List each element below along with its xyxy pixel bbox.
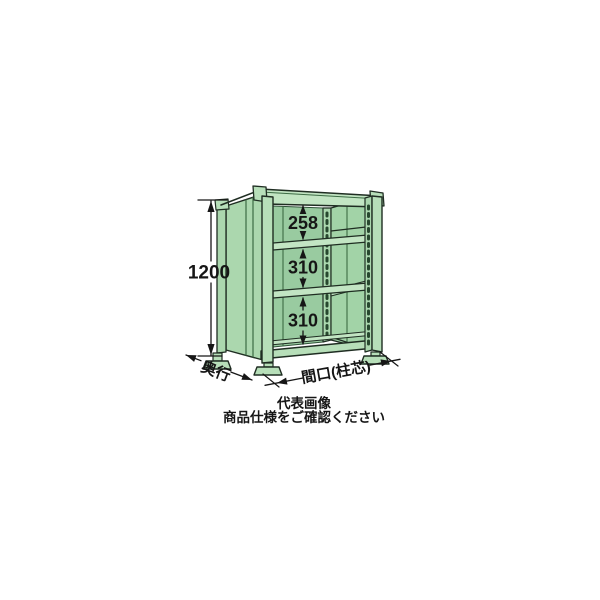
arrow-upleft-icon: [186, 355, 197, 362]
foot-front-left: [254, 363, 282, 375]
caption-line-1: 代表画像: [276, 395, 331, 411]
front-left-post: [262, 196, 273, 363]
caption-line-2: 商品仕様をご確認ください: [223, 409, 385, 425]
arrow-downright-icon: [241, 373, 252, 380]
left-side-panel: [226, 194, 263, 360]
height-dimension-value: 1200: [188, 263, 230, 284]
arrow-up-icon: [207, 201, 214, 212]
spacing-value-3: 310: [288, 311, 318, 331]
arrow-upright-icon: [381, 359, 392, 366]
spacing-value-2: 310: [288, 257, 318, 277]
width-dimension-label: 間口(柱芯): [300, 357, 372, 387]
catalog-product-image: 1200 258 310 310: [0, 0, 600, 600]
shelf-unit-drawing: 1200 258 310 310: [0, 0, 600, 600]
front-right-post: [372, 196, 382, 352]
spacing-value-1: 258: [288, 213, 318, 233]
arrow-downleft-icon: [277, 378, 288, 385]
right-side-opening: [331, 198, 366, 349]
